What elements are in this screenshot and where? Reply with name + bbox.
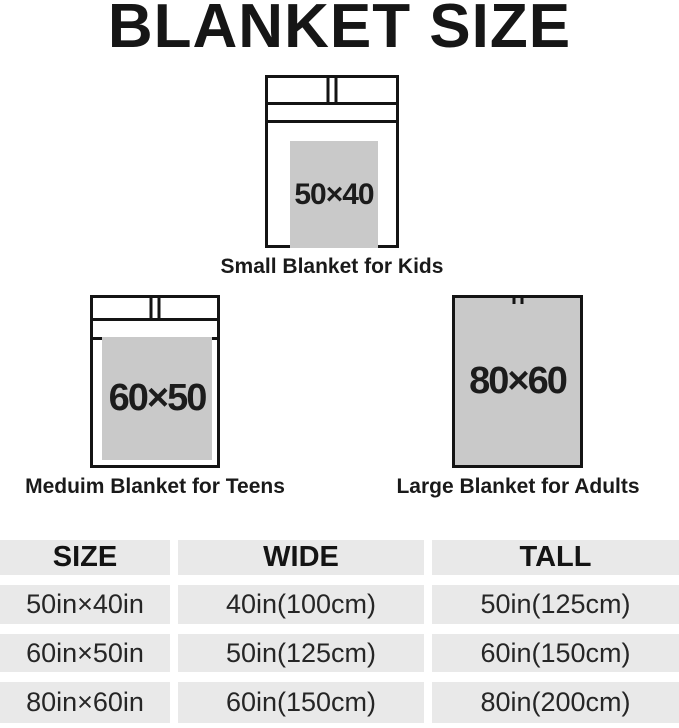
page-title: BLANKET SIZE [0,0,679,59]
caption-medium-blanket: Meduim Blanket for Teens [0,475,320,499]
table-cell-tall-3: 80in(200cm) [432,682,679,723]
blanket-large: 80×60 [455,298,580,465]
table-cell-tall-1: 50in(125cm) [432,585,679,624]
table-cell-wide-1: 40in(100cm) [178,585,424,624]
blanket-size-label-medium: 60×50 [109,377,206,420]
table-cell-size-1: 50in×40in [0,585,170,624]
bed-pillow-row [93,298,217,321]
caption-large-blanket: Large Blanket for Adults [353,475,679,499]
bed-diagram-small: 50×40 [265,75,399,248]
blanket-medium: 60×50 [102,337,212,460]
bed-diagram-medium: 60×50 [90,295,220,468]
table-header-size: SIZE [0,540,170,575]
blanket-size-label-large: 80×60 [469,360,566,403]
table-cell-size-2: 60in×50in [0,634,170,672]
bed-fold-band [268,105,396,123]
table-cell-tall-2: 60in(150cm) [432,634,679,672]
bed-diagram-large: 80×60 [452,295,583,468]
table-cell-size-3: 80in×60in [0,682,170,723]
pillow-divider-icon [327,78,338,102]
caption-small-blanket: Small Blanket for Kids [182,255,482,279]
size-table: SIZE WIDE TALL 50in×40in 40in(100cm) 50i… [0,540,679,723]
table-cell-wide-2: 50in(125cm) [178,634,424,672]
table-header-wide: WIDE [178,540,424,575]
blanket-size-infographic: BLANKET SIZE 50×40 Small Blanket for Kid… [0,0,679,728]
table-header-tall: TALL [432,540,679,575]
pillow-divider-icon [150,298,161,318]
blanket-size-label-small: 50×40 [294,178,373,212]
pillow-divider-icon [512,298,523,304]
bed-pillow-row [268,78,396,105]
table-cell-wide-3: 60in(150cm) [178,682,424,723]
blanket-small: 50×40 [290,141,378,248]
